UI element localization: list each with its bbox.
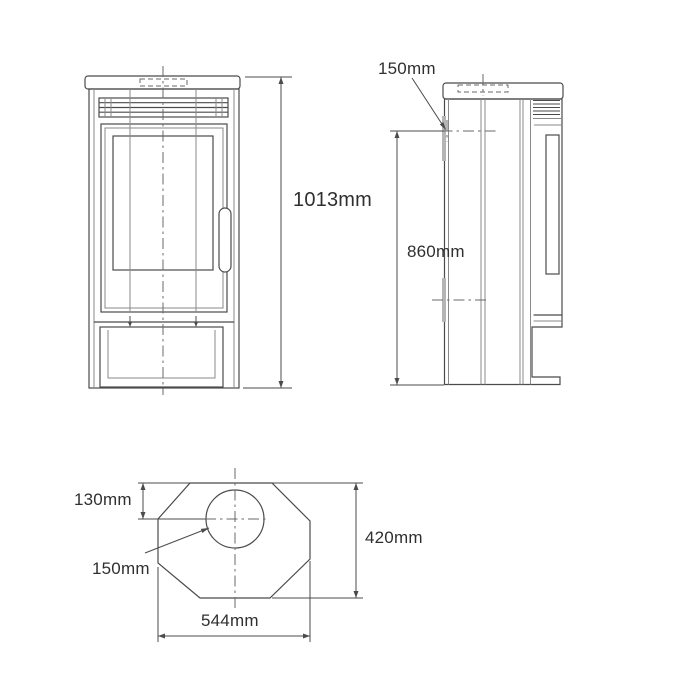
stove-dimension-diagram: 1013mm 150mm 860mm 130mm 150mm 420mm 544…	[0, 0, 700, 700]
diagram-linework	[0, 0, 700, 700]
plan-flue-diameter-label: 150mm	[92, 560, 150, 579]
side-view-drawing	[390, 74, 563, 385]
front-overall-height-label: 1013mm	[293, 189, 372, 211]
side-flue-outlet-label: 150mm	[378, 60, 436, 79]
door-handle	[219, 208, 231, 272]
plan-flue-setback-label: 130mm	[74, 491, 132, 510]
plan-width-label: 544mm	[201, 612, 259, 631]
side-flue-centre-height-label: 860mm	[407, 243, 465, 262]
front-view-drawing	[85, 66, 292, 395]
plan-depth-label: 420mm	[365, 529, 423, 548]
